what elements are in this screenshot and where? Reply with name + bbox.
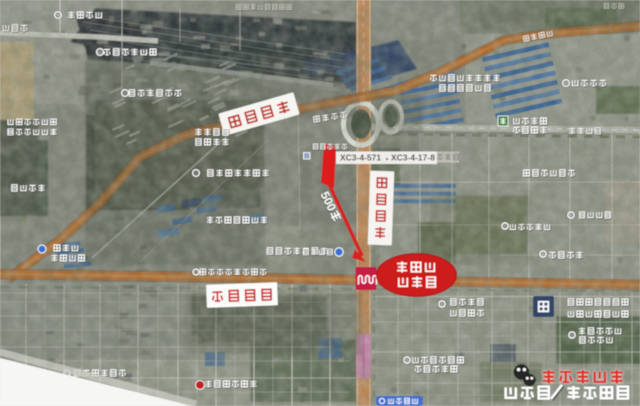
svg-text:XC3-4-17-8: XC3-4-17-8 xyxy=(391,153,435,163)
svg-text:XC3-4-571: XC3-4-571 xyxy=(340,153,381,163)
